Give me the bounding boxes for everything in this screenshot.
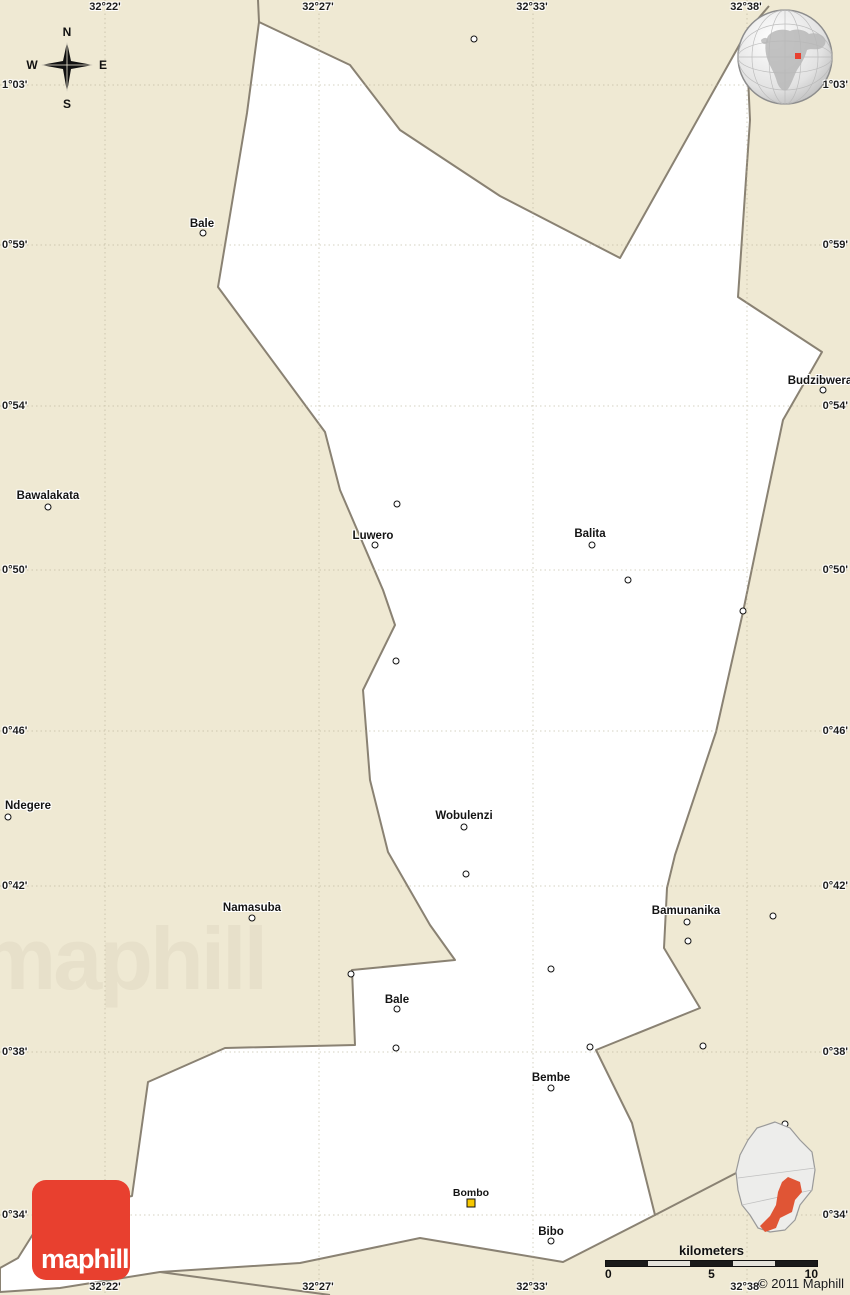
place-label: Balita xyxy=(574,528,605,540)
place-marker xyxy=(394,1006,401,1013)
district-polygon xyxy=(0,22,822,1292)
coordinate-label: 0°50' xyxy=(823,564,848,576)
compass-s-label: S xyxy=(63,97,71,111)
coordinate-label: 0°54' xyxy=(823,400,848,412)
coordinate-label: 32°22' xyxy=(89,1281,121,1293)
place-marker xyxy=(684,919,691,926)
scale-segment xyxy=(775,1261,817,1266)
scale-tick: 0 xyxy=(605,1267,612,1281)
place-marker xyxy=(770,913,777,920)
place-label: Ndegere xyxy=(5,800,51,812)
place-label: Bamunanika xyxy=(652,905,720,917)
place-label: Budzibwera xyxy=(788,375,850,387)
place-marker xyxy=(45,504,52,511)
compass-n-label: N xyxy=(63,25,72,39)
scale-bar-segments xyxy=(605,1260,818,1267)
coordinate-label: 0°50' xyxy=(2,564,27,576)
scale-segment xyxy=(733,1261,775,1266)
coordinate-label: 0°42' xyxy=(823,880,848,892)
map-canvas xyxy=(0,0,850,1295)
place-marker xyxy=(548,1238,555,1245)
copyright-text: © 2011 Maphill xyxy=(758,1276,844,1291)
compass-rose-icon: N S W E xyxy=(22,18,112,113)
coordinate-label: 1°03' xyxy=(2,79,27,91)
maphill-logo: maphill xyxy=(32,1180,130,1280)
place-marker xyxy=(587,1044,594,1051)
coordinate-label: 0°42' xyxy=(2,880,27,892)
globe-location-marker xyxy=(795,53,801,59)
place-marker xyxy=(471,36,478,43)
place-marker xyxy=(548,966,555,973)
scale-segment xyxy=(606,1261,648,1266)
maphill-logo-text: maphill xyxy=(41,1244,129,1275)
coordinate-label: 0°59' xyxy=(823,239,848,251)
coordinate-label: 32°33' xyxy=(516,1281,548,1293)
place-marker xyxy=(740,608,747,615)
place-marker xyxy=(820,387,827,394)
place-marker xyxy=(348,971,355,978)
coordinate-label: 32°22' xyxy=(89,1,121,13)
scale-bar-title: kilometers xyxy=(605,1243,818,1258)
coordinate-label: 0°59' xyxy=(2,239,27,251)
coordinate-label: 1°03' xyxy=(823,79,848,91)
coordinate-label: 0°46' xyxy=(823,725,848,737)
place-label: Namasuba xyxy=(223,902,281,914)
scale-tick: 5 xyxy=(708,1267,715,1281)
scale-segment xyxy=(690,1261,732,1266)
compass-e-label: E xyxy=(99,58,107,72)
place-label: Luwero xyxy=(353,530,394,542)
locator-map xyxy=(714,1112,824,1237)
coordinate-label: 32°33' xyxy=(516,1,548,13)
place-marker xyxy=(461,824,468,831)
coordinate-label: 32°27' xyxy=(302,1281,334,1293)
coordinate-label: 32°27' xyxy=(302,1,334,13)
place-label: Bale xyxy=(385,994,409,1006)
place-marker xyxy=(372,542,379,549)
compass-w-label: W xyxy=(26,58,38,72)
place-marker xyxy=(463,871,470,878)
place-marker xyxy=(548,1085,555,1092)
scale-segment xyxy=(648,1261,690,1266)
place-label: Bawalakata xyxy=(17,490,80,502)
place-marker xyxy=(393,658,400,665)
globe-icon xyxy=(735,6,835,110)
coordinate-label: 0°34' xyxy=(2,1209,27,1221)
coordinate-label: 0°38' xyxy=(823,1046,848,1058)
coordinate-label: 0°38' xyxy=(2,1046,27,1058)
place-marker xyxy=(394,501,401,508)
place-label: Wobulenzi xyxy=(435,810,492,822)
coordinate-label: 0°54' xyxy=(2,400,27,412)
place-marker xyxy=(589,542,596,549)
coordinate-label: 0°34' xyxy=(823,1209,848,1221)
place-label: Bibo xyxy=(538,1226,564,1238)
place-marker xyxy=(249,915,256,922)
place-label: Bembe xyxy=(532,1072,570,1084)
place-marker xyxy=(5,814,12,821)
place-marker xyxy=(625,577,632,584)
coordinate-label: 32°38' xyxy=(730,1,762,13)
town-marker xyxy=(467,1199,476,1208)
place-marker xyxy=(685,938,692,945)
coordinate-label: 0°46' xyxy=(2,725,27,737)
place-marker xyxy=(393,1045,400,1052)
place-marker xyxy=(200,230,207,237)
place-label: Bombo xyxy=(453,1187,489,1199)
place-marker xyxy=(700,1043,707,1050)
map-root: maphill N S W E xyxy=(0,0,850,1295)
place-label: Bale xyxy=(190,218,214,230)
